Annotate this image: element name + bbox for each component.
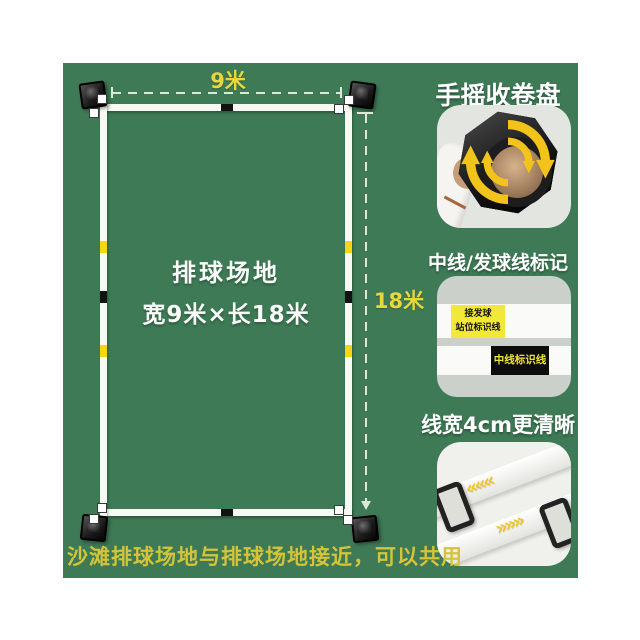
- measure-tick: [340, 87, 342, 98]
- length-label: 18米: [369, 285, 429, 315]
- serve-line-tag: 接发球 站位标识线: [451, 305, 505, 338]
- corner-stake-icon: [351, 515, 380, 544]
- strap-buckle-icon: [97, 503, 107, 513]
- center-mark-top: [221, 104, 233, 111]
- center-mark-bottom: [221, 509, 233, 516]
- attack-line-marker: [100, 345, 107, 357]
- strap-buckle-icon: [344, 95, 354, 105]
- reel-photo-card: [437, 105, 571, 228]
- attack-line-marker: [345, 241, 352, 253]
- measure-tick: [357, 112, 373, 114]
- feature-width-title: 线宽4cm更清晰: [421, 409, 575, 439]
- serve-line-tag-line2: 站位标识线: [451, 321, 505, 335]
- attack-line-marker: [345, 345, 352, 357]
- green-backdrop: 9米 18米 排球场地 宽9米×长18米 手摇收卷盘: [63, 63, 578, 578]
- rotation-arrows-icon: [454, 108, 562, 216]
- strap-buckle-icon: [89, 514, 99, 524]
- serve-line-tag-line1: 接发球: [451, 307, 505, 321]
- length-measure-line: [365, 114, 367, 504]
- strap-buckle-icon: [89, 108, 99, 118]
- product-image: 9米 18米 排球场地 宽9米×长18米 手摇收卷盘: [0, 0, 640, 640]
- marker-sample-card: 接发球 站位标识线 中线标识线: [437, 276, 571, 397]
- center-line-tag: 中线标识线: [491, 346, 549, 375]
- measure-tick: [111, 87, 113, 98]
- attack-line-marker: [100, 241, 107, 253]
- strap-buckle-icon: [97, 94, 107, 104]
- measure-arrow-icon: [361, 501, 371, 510]
- feature-marker-title: 中线/发球线标记: [419, 248, 577, 275]
- strap-buckle-icon: [343, 515, 353, 525]
- width-label: 9米: [183, 65, 273, 95]
- court-dimensions: 宽9米×长18米: [100, 295, 352, 329]
- court-text-block: 排球场地 宽9米×长18米: [100, 253, 352, 329]
- strap-buckle-icon: [334, 505, 344, 515]
- court-title: 排球场地: [100, 253, 352, 288]
- strap-buckle-icon: [334, 104, 344, 114]
- product-caption: 沙滩排球场地与排球场地接近，可以共用: [67, 541, 572, 571]
